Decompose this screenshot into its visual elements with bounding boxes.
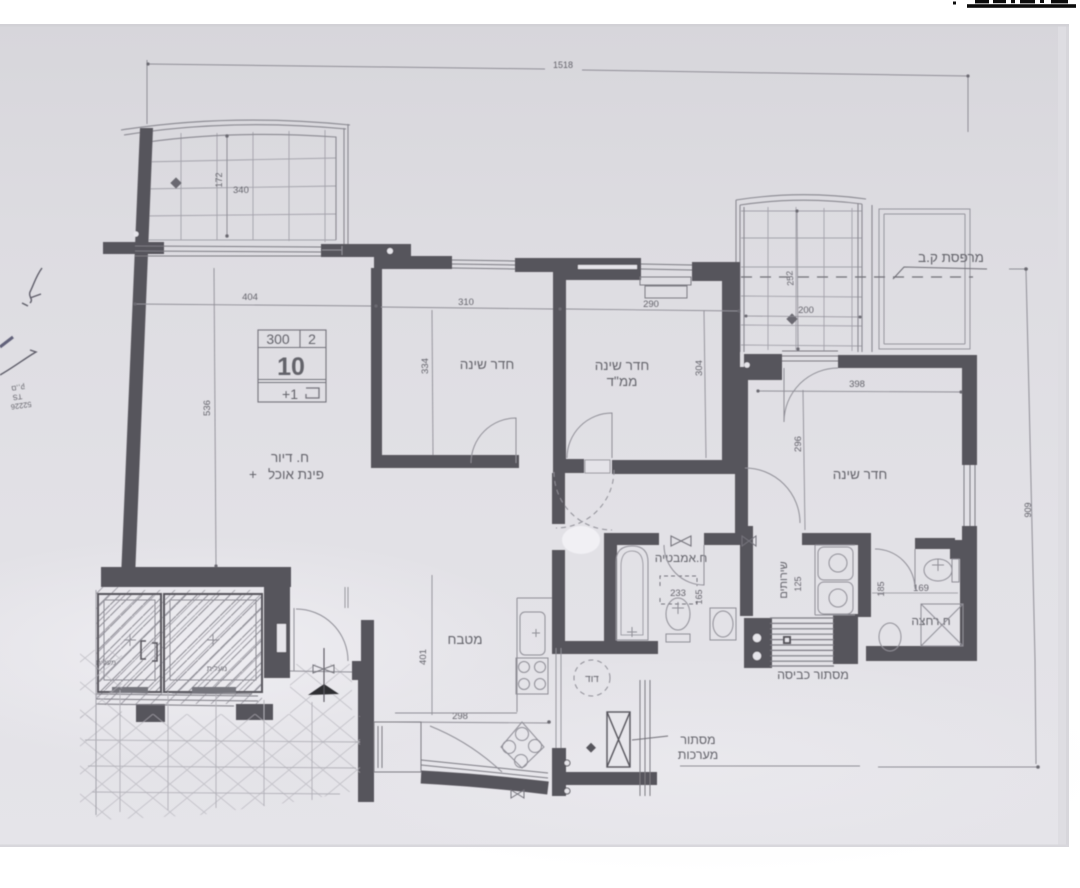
svg-text:401: 401 bbox=[418, 649, 429, 665]
svg-text:חדר שינה: חדר שינה bbox=[833, 467, 888, 482]
svg-text:+: + bbox=[249, 467, 257, 482]
svg-text:200: 200 bbox=[798, 305, 814, 316]
svg-text:חדר שינה: חדר שינה bbox=[595, 358, 650, 373]
svg-text:252: 252 bbox=[784, 270, 795, 286]
svg-text:340: 340 bbox=[233, 185, 249, 196]
svg-text:536: 536 bbox=[202, 400, 213, 416]
svg-text:ממ"ד: ממ"ד bbox=[607, 374, 638, 389]
svg-text:מסתור כביסה: מסתור כביסה bbox=[777, 668, 849, 682]
svg-text:398: 398 bbox=[849, 379, 865, 390]
svg-text:ח. דיור: ח. דיור bbox=[271, 450, 309, 465]
svg-text:125: 125 bbox=[793, 576, 803, 591]
svg-text:310: 310 bbox=[458, 297, 474, 308]
svg-text:404: 404 bbox=[242, 292, 258, 303]
svg-text:909: 909 bbox=[1023, 502, 1033, 517]
svg-text:חדר שינה: חדר שינה bbox=[460, 357, 515, 372]
svg-text:מסתור: מסתור bbox=[680, 733, 715, 747]
svg-text:296: 296 bbox=[793, 436, 804, 452]
svg-text:300: 300 bbox=[266, 331, 290, 347]
svg-text:185: 185 bbox=[876, 581, 886, 596]
svg-text:1518: 1518 bbox=[553, 60, 573, 70]
svg-text:ם,,ק: ם,,ק bbox=[11, 382, 26, 393]
svg-text:290: 290 bbox=[643, 299, 659, 310]
svg-text:+1: +1 bbox=[282, 386, 298, 402]
svg-text:ח.רחצה: ח.רחצה bbox=[911, 614, 950, 628]
svg-text:304: 304 bbox=[694, 360, 705, 376]
svg-text:דוד: דוד bbox=[585, 674, 599, 685]
svg-text:2: 2 bbox=[308, 331, 316, 347]
svg-text:165: 165 bbox=[694, 589, 704, 604]
svg-text:334: 334 bbox=[420, 358, 431, 374]
svg-text:ח.אמבטיה: ח.אמבטיה bbox=[655, 551, 708, 565]
svg-text:מרפסת ק.ב: מרפסת ק.ב bbox=[918, 250, 984, 265]
svg-text:מטבח: מטבח bbox=[447, 632, 482, 647]
svg-text:שירותים: שירותים bbox=[778, 561, 790, 598]
svg-text:10: 10 bbox=[277, 353, 305, 381]
svg-text:233: 233 bbox=[670, 588, 686, 599]
svg-text:172: 172 bbox=[214, 172, 224, 187]
svg-text:מערכות: מערכות bbox=[678, 748, 719, 762]
svg-text:פינת אוכל: פינת אוכל bbox=[268, 467, 324, 482]
